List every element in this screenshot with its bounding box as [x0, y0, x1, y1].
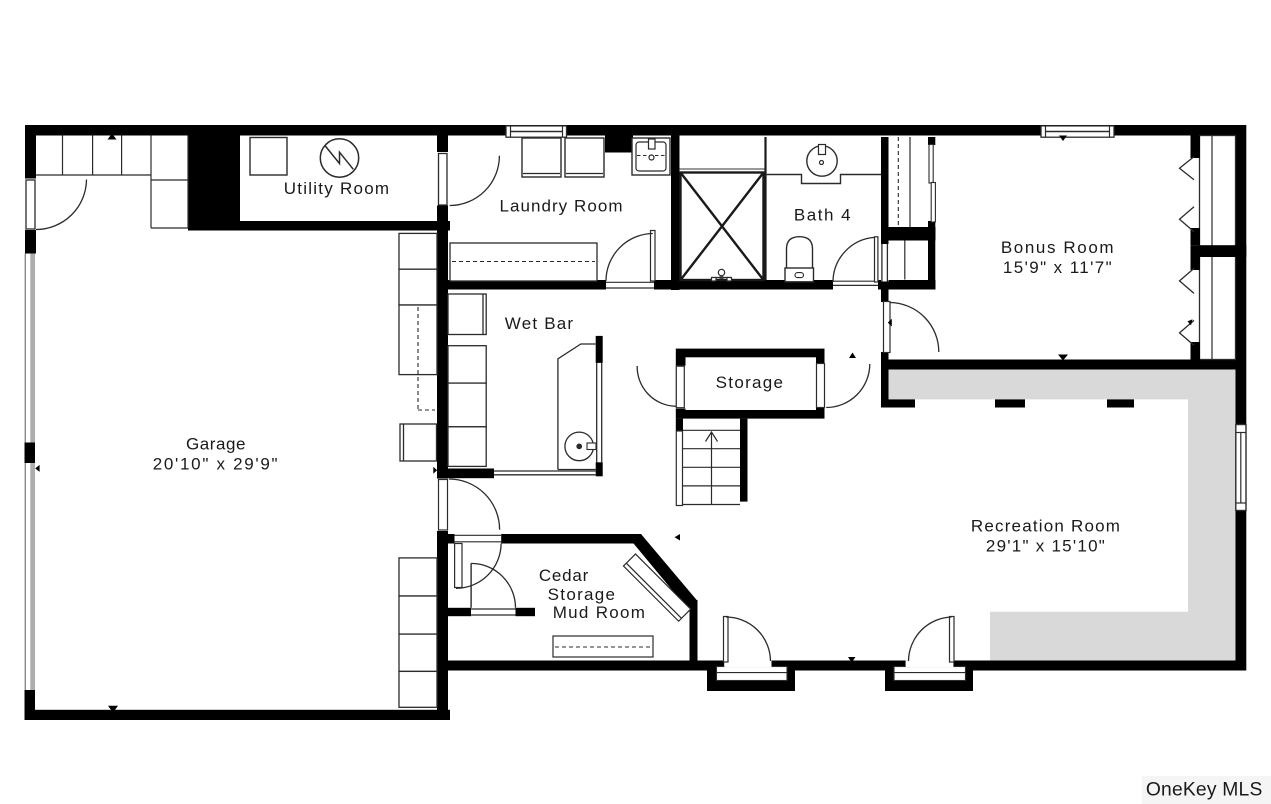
svg-text:Garage: Garage	[186, 435, 246, 454]
svg-text:Storage: Storage	[548, 585, 617, 604]
svg-text:Bath 4: Bath 4	[794, 206, 852, 225]
svg-text:Bonus Room: Bonus Room	[1001, 238, 1115, 257]
svg-text:Recreation Room: Recreation Room	[971, 517, 1121, 536]
svg-text:Utility Room: Utility Room	[284, 179, 391, 198]
svg-text:Storage: Storage	[716, 373, 785, 392]
svg-text:OneKey MLS: OneKey MLS	[1146, 780, 1263, 801]
svg-text:20'10" x 29'9": 20'10" x 29'9"	[153, 455, 280, 474]
svg-text:Laundry Room: Laundry Room	[499, 197, 623, 216]
svg-text:Mud Room: Mud Room	[553, 603, 647, 622]
svg-text:Wet Bar: Wet Bar	[505, 314, 575, 333]
svg-text:Cedar: Cedar	[539, 566, 589, 585]
svg-text:15'9" x 11'7": 15'9" x 11'7"	[1003, 258, 1113, 277]
svg-text:29'1" x 15'10": 29'1" x 15'10"	[986, 537, 1106, 556]
